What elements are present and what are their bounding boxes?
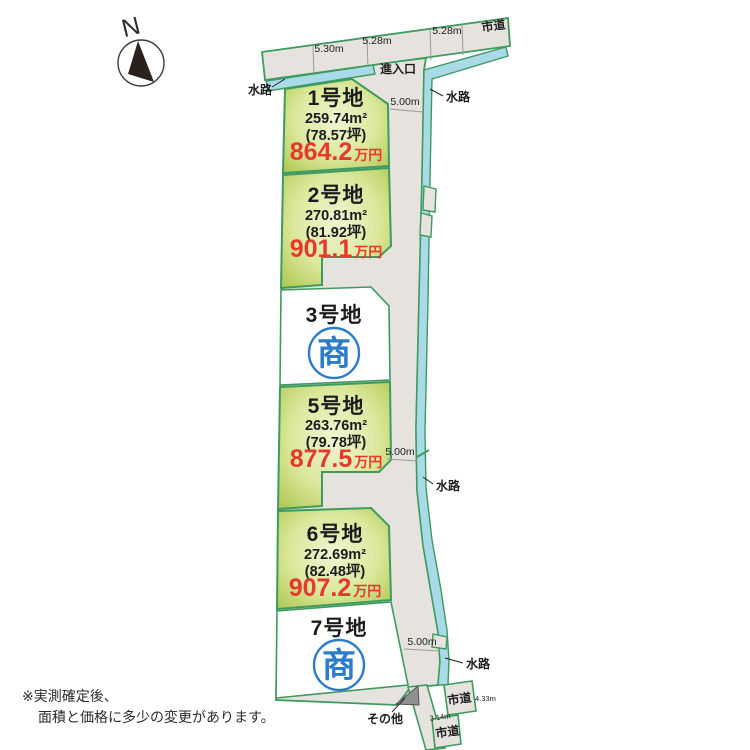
entrance-label: 進入口 [380, 61, 416, 76]
price-number: 877.5 [290, 445, 353, 473]
price-unit: 万円 [353, 454, 382, 470]
road-width-label: 5.00m [390, 96, 419, 108]
measure-4-33: 4.33m [475, 694, 496, 703]
plot-area-m2: 270.81m² [305, 208, 367, 224]
plot-label: 1号地 [308, 86, 365, 110]
negotiation-mark: 商 [317, 335, 351, 373]
road-width-label: 5.00m [385, 446, 414, 458]
bridge-tab [423, 186, 436, 212]
road-segment-measure: 5.28m [362, 35, 391, 47]
waterway-label: 水路 [466, 656, 491, 671]
waterway-label: 水路 [248, 82, 273, 97]
plot-label: 2号地 [308, 183, 365, 207]
road-width-label: 5.00m [407, 636, 436, 648]
price-number: 864.2 [290, 138, 353, 166]
price-unit: 万円 [353, 147, 382, 163]
bridge-tab [420, 213, 432, 237]
plot-area-m2: 259.74m² [305, 111, 367, 127]
road-segment-measure: 5.28m [432, 25, 461, 37]
other-area-label: その他 [367, 711, 403, 726]
price-unit: 万円 [353, 244, 382, 260]
plot-label: 7号地 [311, 616, 368, 640]
price-unit: 万円 [352, 583, 381, 599]
plot-label: 6号地 [307, 522, 364, 546]
plot-area-m2: 263.76m² [305, 418, 367, 434]
waterway-label: 水路 [446, 89, 471, 104]
plot-area-m2: 272.69m² [304, 547, 366, 563]
road-segment-measure: 5.30m [314, 43, 343, 55]
map-canvas: N 5.30m 5.28m 5.28m 市道 5.00m 5.00m 5.00m… [0, 0, 750, 750]
note-line-2: 面積と価格に多少の変更があります。 [38, 709, 275, 725]
plot-label: 5号地 [308, 394, 365, 418]
note-line-1: ※実測確定後、 [22, 688, 118, 704]
negotiation-mark: 商 [322, 647, 356, 685]
plot-label: 3号地 [306, 303, 363, 327]
land-plot-map: N 5.30m 5.28m 5.28m 市道 5.00m 5.00m 5.00m… [0, 0, 750, 750]
price-number: 901.1 [290, 235, 353, 263]
price-number: 907.2 [289, 574, 352, 602]
waterway-label: 水路 [436, 478, 461, 493]
